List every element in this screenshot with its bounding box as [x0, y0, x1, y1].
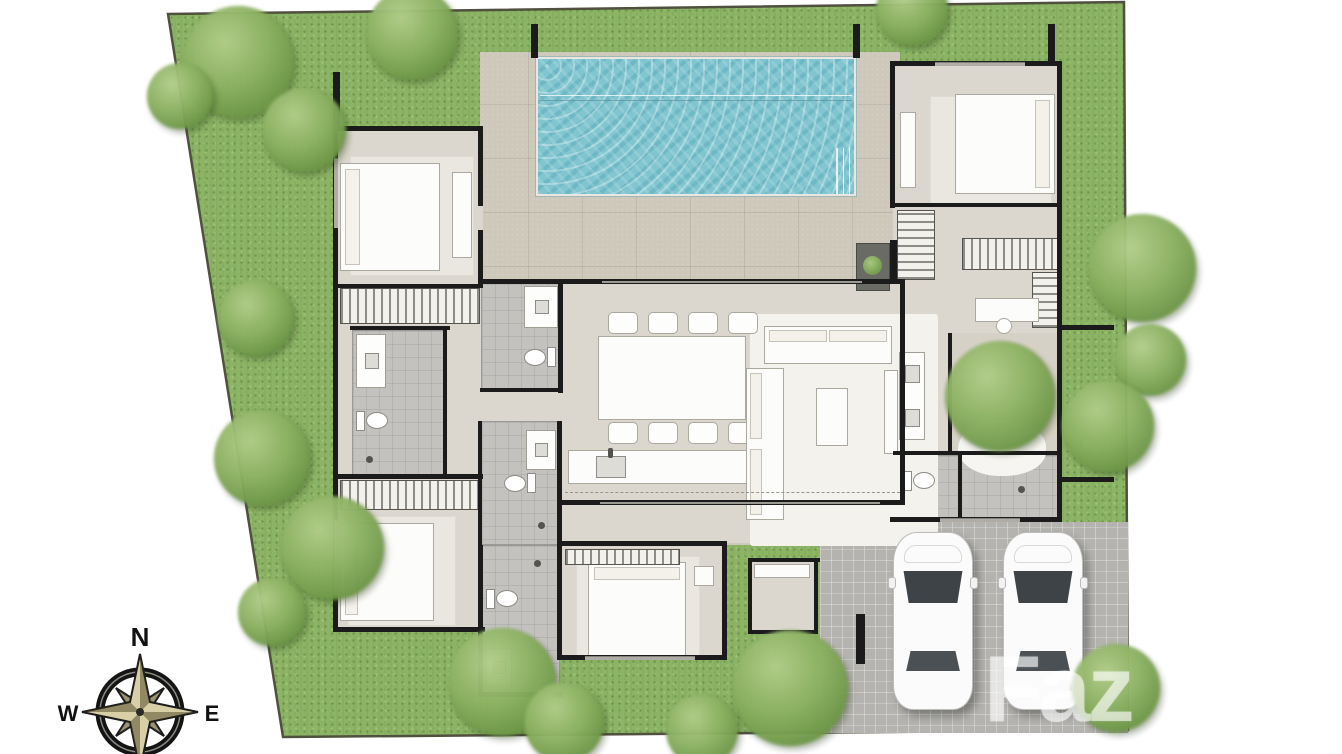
tree	[262, 88, 346, 172]
toilet-bathroom2	[522, 346, 556, 368]
bench-master-bedroom	[900, 112, 916, 188]
wall	[814, 558, 818, 634]
kitchen-sink	[596, 456, 626, 478]
wall	[557, 421, 562, 547]
tree	[218, 280, 294, 356]
coffee-table	[816, 388, 848, 446]
wall	[480, 388, 562, 392]
pergola-post	[853, 24, 860, 58]
closet-right-wing	[897, 210, 935, 280]
wall	[557, 545, 562, 657]
wall	[893, 451, 1058, 455]
bed-master-bedroom	[955, 94, 1055, 194]
wall	[443, 326, 447, 478]
dining-chair	[728, 312, 758, 334]
kitchen-faucet	[608, 448, 613, 458]
wall	[748, 558, 820, 562]
dining-table	[598, 336, 746, 420]
shelf-bedroom3	[565, 549, 680, 565]
tree	[1088, 214, 1196, 322]
window	[940, 518, 1020, 522]
side-table-bedroom3	[694, 566, 714, 586]
car-left	[893, 532, 973, 710]
wall	[350, 326, 450, 330]
dining-chair	[608, 422, 638, 444]
compass-east-label: E	[205, 701, 220, 726]
sofa-left	[746, 368, 784, 520]
wall	[900, 279, 905, 505]
tree	[214, 410, 310, 506]
roof-overhang-line	[565, 492, 900, 493]
wall	[480, 279, 563, 284]
dining-chair	[648, 422, 678, 444]
tree	[238, 578, 306, 646]
toilet-bathroom3	[502, 472, 536, 494]
carport-pillar	[856, 614, 865, 664]
swimming-pool	[536, 57, 856, 196]
compass-rose: N W E	[40, 622, 240, 754]
wall	[890, 61, 895, 208]
wall	[333, 126, 483, 131]
pergola-post	[1048, 24, 1055, 62]
wall	[890, 240, 897, 284]
toilet-bathroom4	[486, 588, 520, 610]
wall	[722, 541, 727, 660]
tree	[732, 630, 848, 746]
window	[585, 656, 695, 660]
bed-bedroom3	[588, 562, 686, 656]
wall	[478, 421, 482, 547]
bench-bedroom1	[452, 172, 472, 258]
wall	[558, 279, 563, 393]
wall	[337, 284, 482, 288]
tree	[147, 63, 213, 129]
garden-wall-stub	[1062, 325, 1114, 330]
compass-west-label: W	[58, 701, 79, 726]
dining-chair	[648, 312, 678, 334]
tree	[524, 682, 604, 754]
pool-steps	[836, 148, 855, 194]
shower-master-bath	[1018, 486, 1025, 493]
floor-plan-canvas: N W E Faz	[0, 0, 1342, 754]
window	[334, 158, 338, 228]
shower-bathroom3	[538, 522, 545, 529]
dining-chair	[688, 422, 718, 444]
wall	[478, 126, 483, 206]
vanity-bathroom3	[526, 430, 556, 470]
pergola-post	[531, 24, 538, 58]
wall	[893, 203, 1058, 207]
shower-bathroom1	[366, 456, 373, 463]
wall	[333, 474, 483, 479]
tree	[280, 496, 384, 600]
tv-console	[884, 370, 898, 454]
dining-chair	[688, 312, 718, 334]
vanity-bathroom1	[356, 334, 386, 388]
wall	[748, 558, 752, 634]
wardrobe-bedroom1	[340, 288, 480, 324]
bed-bedroom1	[340, 163, 440, 271]
vanity-bathroom2	[524, 286, 558, 328]
window	[935, 62, 1025, 66]
dining-chair	[608, 312, 638, 334]
garden-wall-stub	[1062, 477, 1114, 482]
glass-door-south	[600, 502, 880, 504]
glass-door-north	[602, 281, 862, 283]
wall	[958, 455, 962, 517]
courtyard-tree	[945, 341, 1055, 451]
shower-bathroom4	[534, 560, 541, 567]
wall	[333, 627, 485, 632]
watermark: Faz	[984, 642, 1132, 736]
storage-shelf	[754, 564, 810, 578]
sofa-top	[764, 326, 892, 364]
desk-chair	[996, 318, 1012, 334]
toilet-master-bath	[903, 470, 937, 492]
walkin-wardrobe-top	[962, 238, 1058, 270]
pool-lane-line	[540, 95, 852, 101]
potted-plant	[863, 256, 882, 275]
wall	[557, 541, 727, 546]
toilet-bathroom1	[356, 410, 390, 432]
tree	[1062, 380, 1154, 472]
compass-north-label: N	[131, 622, 150, 652]
